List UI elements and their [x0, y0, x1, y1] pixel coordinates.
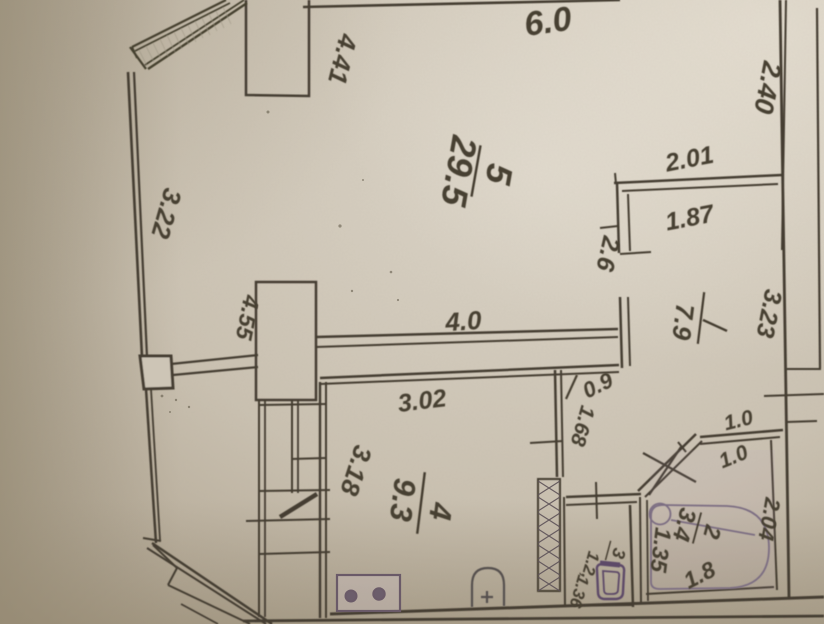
svg-text:4.0: 4.0 [443, 305, 483, 338]
svg-text:7.9: 7.9 [666, 302, 700, 342]
svg-text:3.02: 3.02 [396, 384, 448, 418]
svg-text:1.35: 1.35 [645, 526, 676, 575]
svg-text:6.0: 6.0 [522, 0, 574, 44]
svg-text:9.3: 9.3 [383, 476, 423, 523]
